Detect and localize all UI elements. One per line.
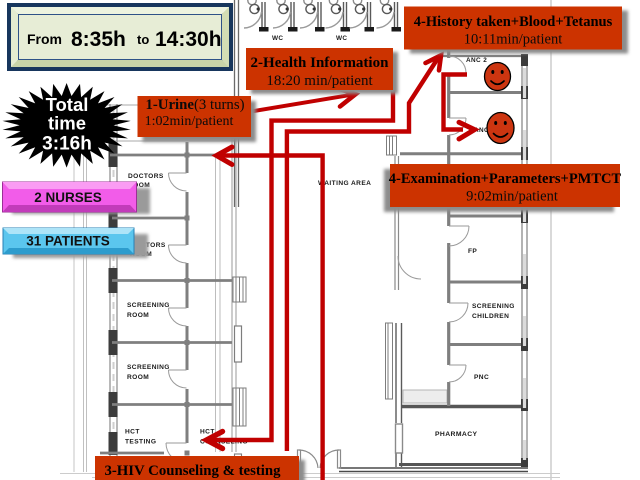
svg-text:PNC: PNC	[474, 374, 489, 381]
svg-text:SCREENING: SCREENING	[127, 302, 170, 309]
svg-text:10:11min/patient: 10:11min/patient	[464, 32, 563, 48]
svg-text:WAITING AREA: WAITING AREA	[318, 180, 371, 187]
svg-text:31 PATIENTS: 31 PATIENTS	[26, 234, 110, 249]
svg-text:From: From	[27, 31, 62, 47]
svg-text:DOCTORS: DOCTORS	[128, 173, 164, 180]
svg-text:9:02min/patient: 9:02min/patient	[466, 189, 558, 205]
svg-text:14:30h: 14:30h	[155, 28, 222, 51]
svg-text:HCT: HCT	[125, 429, 140, 436]
svg-text:4-Examination+Parameters+PMTCT: 4-Examination+Parameters+PMTCT	[389, 171, 622, 187]
svg-text:ANC 2: ANC 2	[466, 57, 487, 64]
svg-text:2-Health Information: 2-Health Information	[251, 55, 390, 71]
svg-text:3:16h: 3:16h	[42, 134, 92, 155]
svg-text:CHILDREN: CHILDREN	[472, 313, 509, 320]
svg-text:1-Urine(3 turns): 1-Urine(3 turns)	[145, 97, 244, 113]
svg-text:PHARMACY: PHARMACY	[435, 431, 478, 438]
svg-text:3-HIV Counseling & testing: 3-HIV Counseling & testing	[104, 463, 281, 479]
svg-text:SCREENING: SCREENING	[472, 303, 515, 310]
svg-text:time: time	[48, 113, 86, 134]
svg-text:18:20 min/patient: 18:20 min/patient	[266, 73, 373, 89]
svg-text:2 NURSES: 2 NURSES	[34, 190, 102, 205]
svg-text:WC: WC	[272, 35, 283, 42]
svg-text:TESTING: TESTING	[125, 439, 156, 446]
svg-text:to: to	[137, 32, 149, 47]
svg-text:SCREENING: SCREENING	[127, 364, 170, 371]
svg-text:ROOM: ROOM	[127, 312, 149, 319]
svg-text:8:35h: 8:35h	[71, 28, 126, 51]
svg-text:4-History taken+Blood+Tetanus: 4-History taken+Blood+Tetanus	[414, 14, 613, 30]
svg-text:FP: FP	[468, 248, 477, 255]
svg-text:WC: WC	[336, 35, 347, 42]
svg-text:1:02min/patient: 1:02min/patient	[145, 114, 234, 129]
svg-text:ROOM: ROOM	[127, 374, 149, 381]
